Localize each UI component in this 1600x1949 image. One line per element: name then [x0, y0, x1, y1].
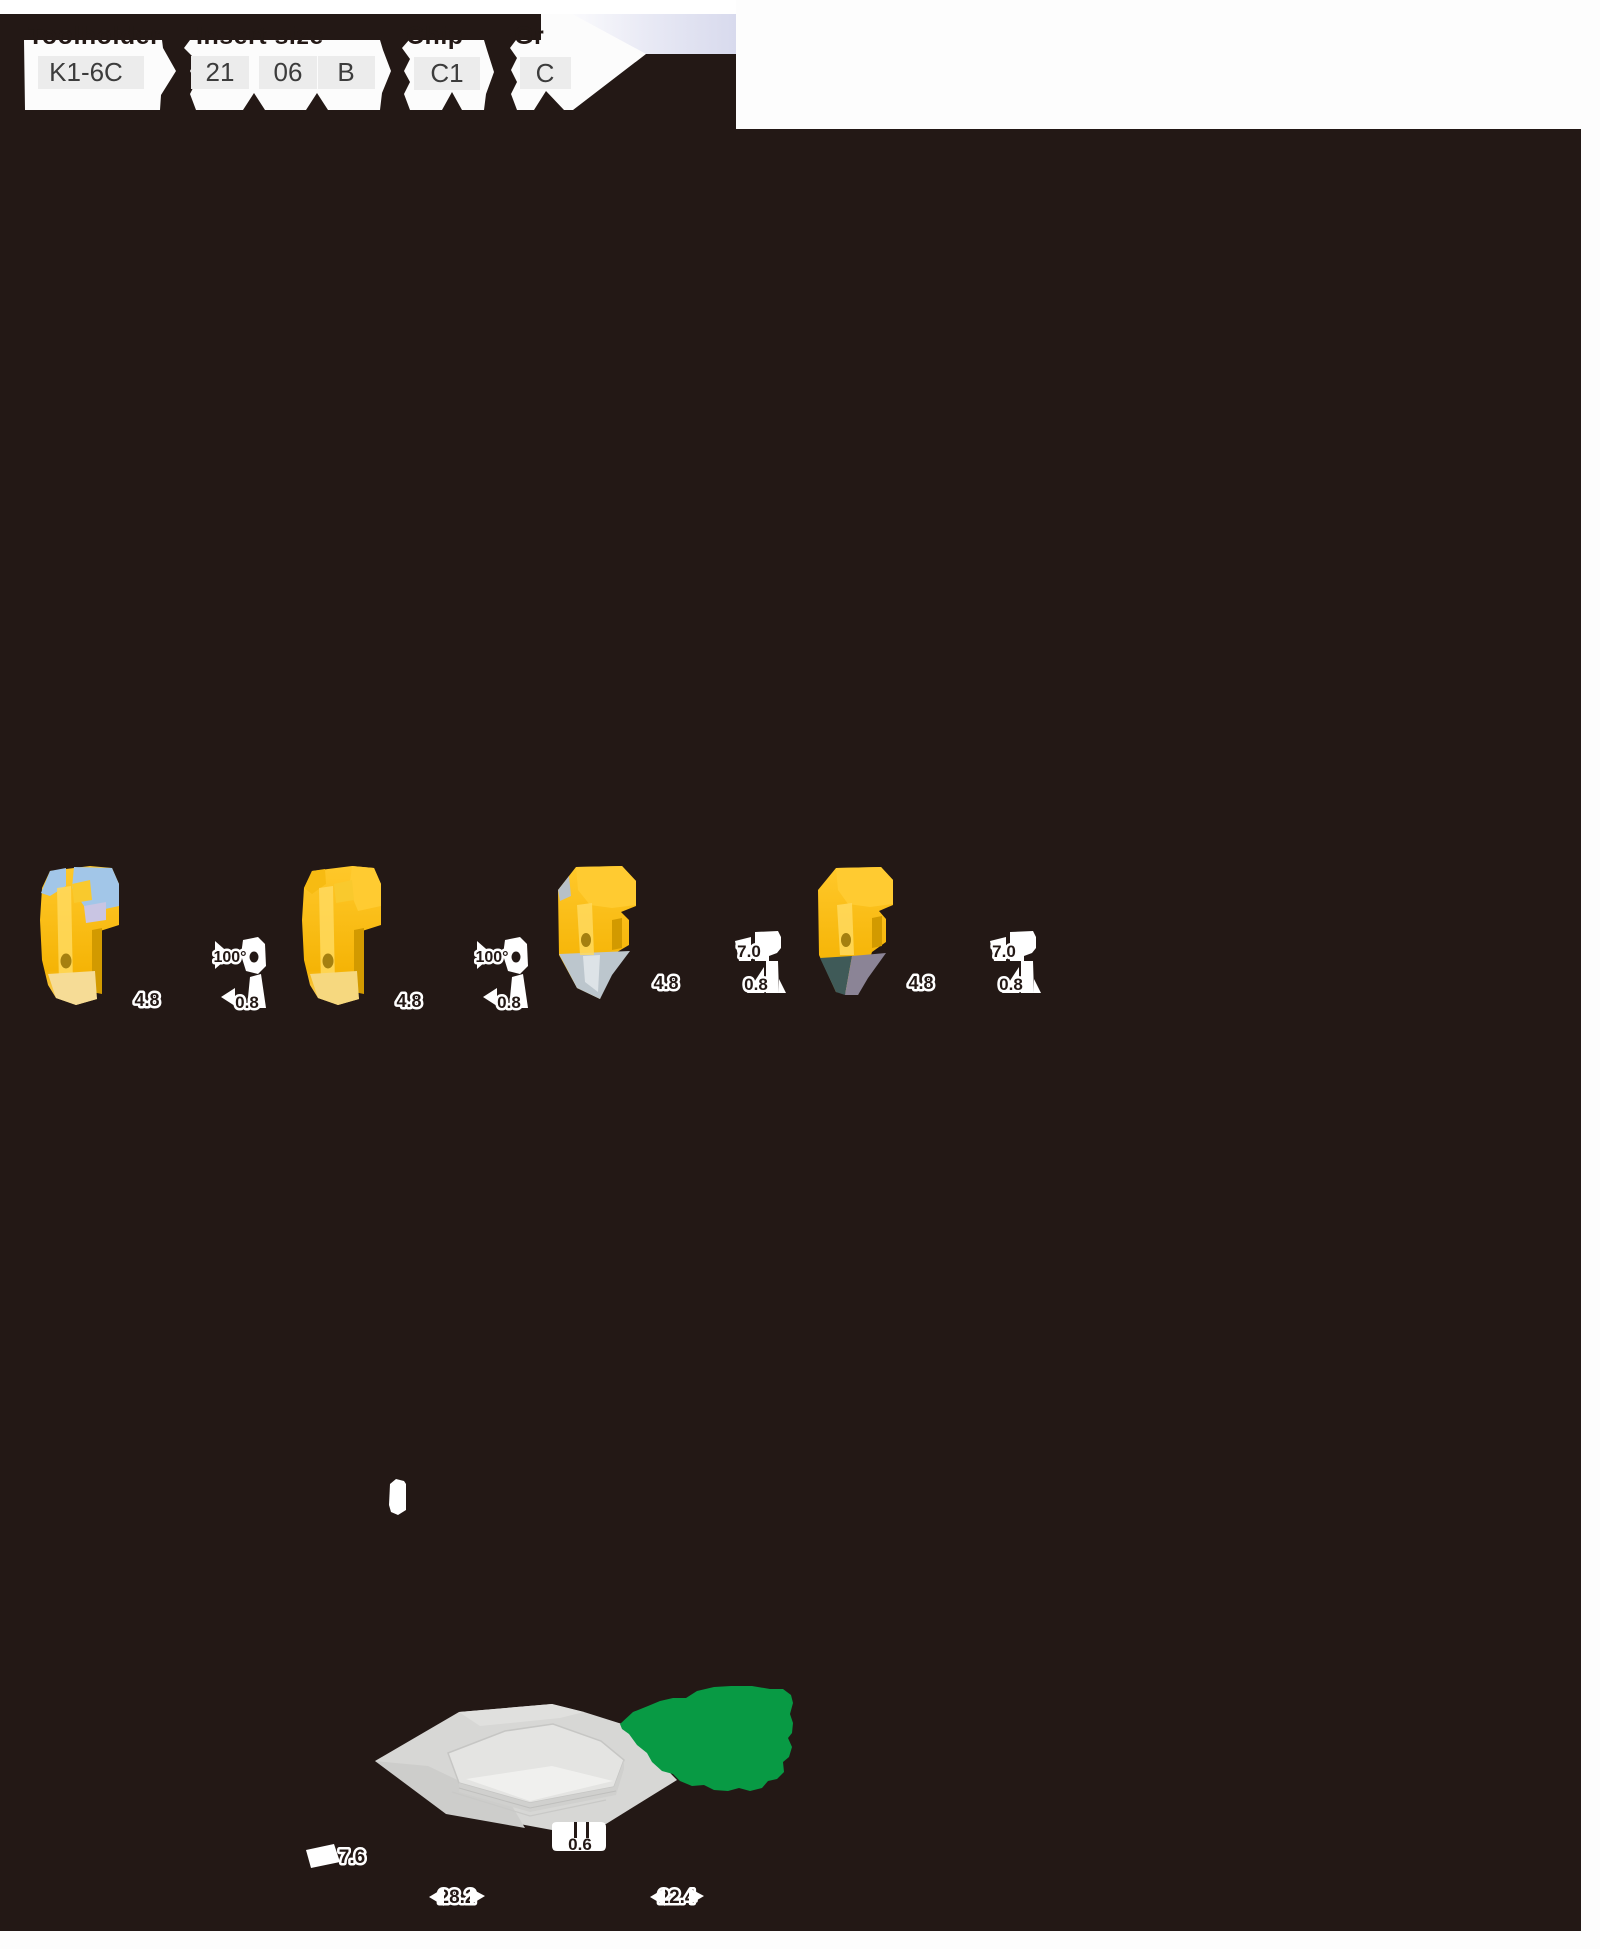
svg-text:4.8: 4.8 — [908, 973, 933, 993]
svg-text:Toolholder: Toolholder — [28, 22, 160, 50]
svg-text:4.8: 4.8 — [134, 990, 159, 1010]
svg-text:C: C — [536, 58, 555, 88]
svg-text:0.8: 0.8 — [744, 975, 768, 994]
svg-text:Insert size: Insert size — [196, 22, 324, 50]
svg-text:7.0: 7.0 — [737, 942, 761, 961]
svg-text:0.6: 0.6 — [568, 1835, 592, 1854]
svg-text:Chip: Chip — [406, 22, 464, 50]
svg-text:21: 21 — [206, 57, 235, 87]
svg-text:06: 06 — [274, 57, 303, 87]
svg-text:C1: C1 — [430, 58, 463, 88]
svg-text:B: B — [337, 57, 354, 87]
svg-text:4.8: 4.8 — [653, 973, 678, 993]
svg-text:0.8: 0.8 — [235, 993, 259, 1012]
svg-text:K1-6C: K1-6C — [49, 57, 123, 87]
svg-text:Gr: Gr — [514, 22, 544, 50]
svg-text:7.6: 7.6 — [339, 1847, 365, 1868]
svg-text:4.8: 4.8 — [396, 991, 421, 1011]
svg-text:28.2: 28.2 — [439, 1887, 476, 1908]
svg-text:100°: 100° — [213, 949, 246, 966]
